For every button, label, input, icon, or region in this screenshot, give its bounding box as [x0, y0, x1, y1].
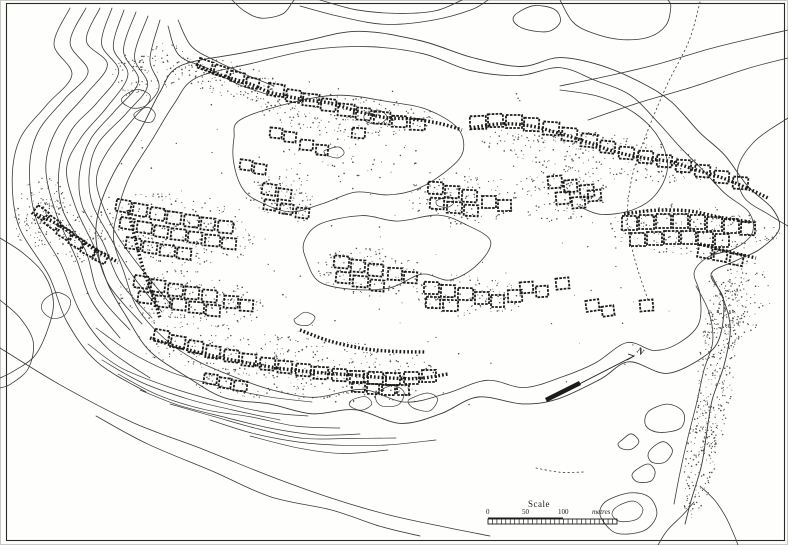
scale-title: Scale: [528, 500, 550, 509]
scale-tick-100: 100: [558, 509, 569, 516]
scale-unit-label: metres: [592, 509, 610, 516]
scale-tick-50: 50: [522, 509, 529, 516]
site-plan-canvas: [0, 0, 788, 545]
scale-tick-0: 0: [486, 509, 490, 516]
site-plan-figure: Scale 0 50 100 metres N: [0, 0, 788, 545]
